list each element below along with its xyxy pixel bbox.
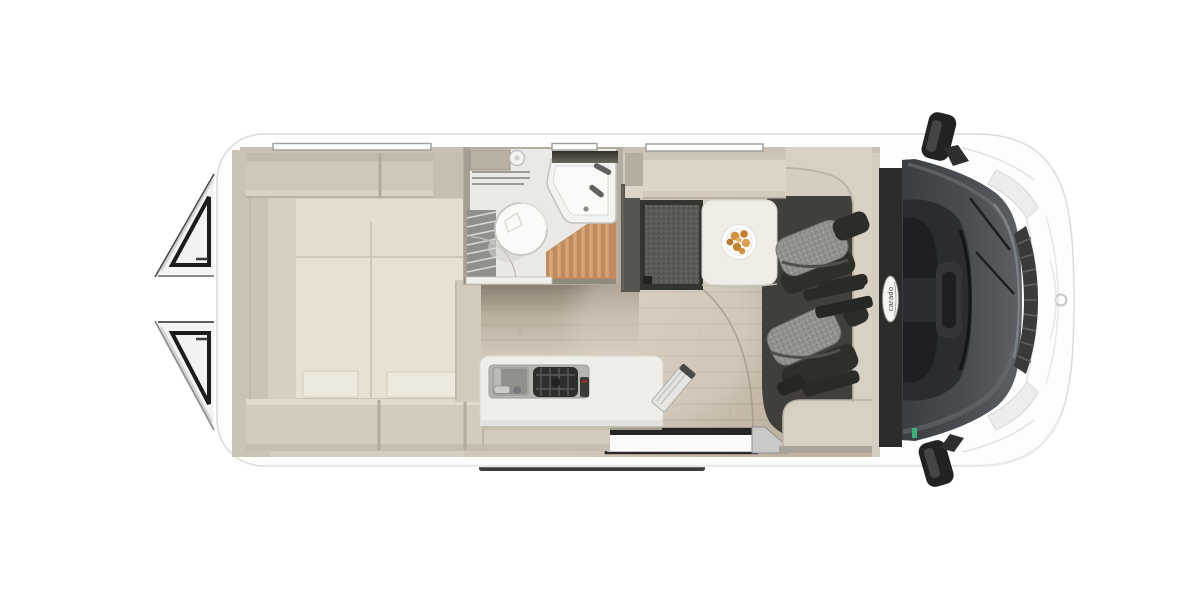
svg-text:carado: carado (886, 287, 895, 312)
